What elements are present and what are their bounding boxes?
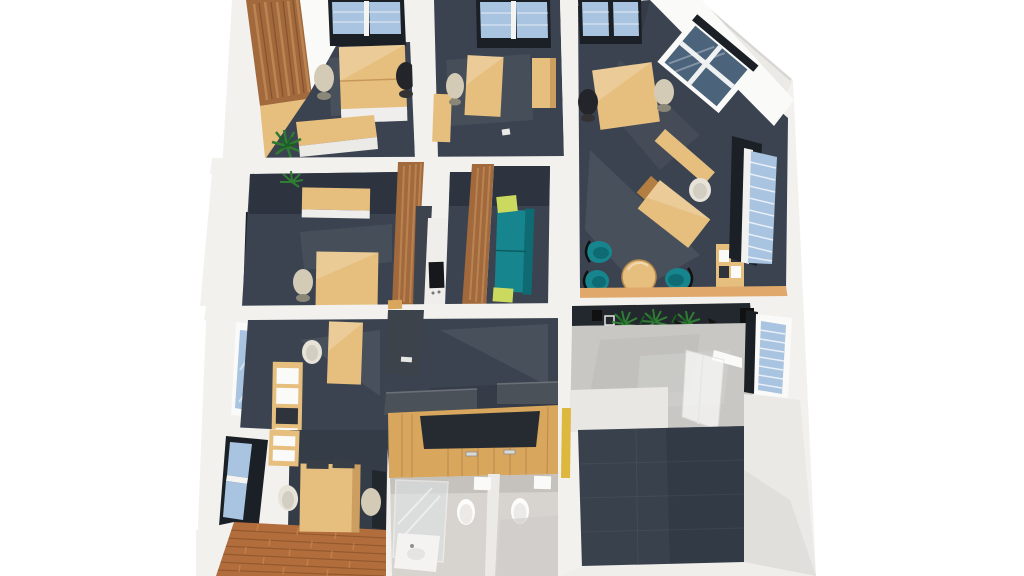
office-chair-beige (361, 488, 381, 516)
cooktop (429, 262, 445, 289)
desk-top (299, 463, 360, 532)
office-chair-black (578, 89, 598, 115)
bathroom (390, 474, 558, 576)
chair-base (449, 99, 461, 106)
office-top-left (246, 0, 416, 158)
office-chair-beige (446, 73, 464, 99)
lounge-nook (462, 164, 550, 306)
chair-base (657, 104, 671, 112)
sink-basin (407, 548, 425, 560)
teal-sofa (494, 207, 534, 294)
counter-top-right (497, 381, 560, 404)
area-carpet-dark-half (666, 426, 748, 567)
threshold-wood-bit (388, 300, 402, 309)
toilet-left-seat (460, 504, 473, 524)
open-room-bottom-right (560, 303, 816, 576)
chair-cushion (282, 491, 294, 509)
skylight-a-mullion (364, 1, 369, 36)
painted-floor-band (570, 387, 668, 432)
chair-seat (593, 247, 609, 259)
wall-cabinet (268, 429, 299, 466)
wall-cabinets (302, 187, 371, 218)
chair-base (399, 90, 413, 98)
skylight-b-glass-2 (516, 2, 548, 38)
office-top-middle (432, 0, 564, 158)
sink-faucet (410, 544, 414, 548)
room-d-desk (592, 62, 660, 130)
skylight-b-mullion (511, 1, 516, 39)
low-cabinet (432, 94, 452, 143)
shelf-cubby-2 (276, 388, 298, 404)
skylight-b-glass-1 (480, 2, 512, 38)
reception (384, 381, 560, 478)
floor-plan-render (0, 0, 1024, 576)
cistern-left (474, 477, 491, 491)
chair-base (296, 294, 310, 302)
tall-cabinet-shade (550, 58, 556, 108)
chair-cushion (693, 183, 707, 199)
window-glass-lower (223, 481, 247, 520)
shelf-cubby-1 (276, 368, 298, 384)
room-h-desk (327, 321, 363, 384)
skylight-d-glass-1 (582, 2, 609, 36)
chair-base (581, 114, 595, 122)
shelf-cubby-1 (719, 250, 729, 262)
kitchen-back-wall (449, 172, 472, 206)
office-chair-beige (314, 64, 334, 92)
sofa-cushion-seam (496, 250, 526, 251)
chair-base (317, 92, 331, 100)
office-mid-left (200, 171, 398, 307)
shelf-cubby-3 (276, 408, 298, 424)
cabinet-underside (302, 209, 370, 218)
office-chair-beige (293, 269, 313, 295)
lime-pillow-bottom (493, 287, 514, 302)
office-chair-beige (654, 79, 674, 105)
room-b-desk (464, 55, 503, 117)
planter-end-cap-left (592, 310, 602, 321)
shelf-cubby-4 (731, 266, 741, 278)
desk-monitor-1 (307, 460, 329, 469)
cabinet-body (302, 187, 370, 210)
chair-seat (668, 274, 684, 286)
chair-cushion (306, 345, 318, 361)
wall-lounge-roomd (550, 164, 568, 306)
cooktop-knob-2 (438, 291, 441, 294)
skylight-a-glass-1 (332, 2, 365, 34)
cabinet-cubby-1 (273, 436, 295, 447)
bathroom-floor-shade (496, 515, 558, 576)
desk-monitor-2 (333, 459, 355, 468)
window-glass-upper (227, 442, 252, 478)
room-e-desk (316, 251, 379, 306)
desk-edge-shade (351, 464, 360, 532)
skylight-a-glass-2 (369, 2, 401, 34)
teal-lounge-chair-1 (586, 241, 612, 263)
chair-seat (592, 276, 606, 288)
counter-handle-2 (504, 450, 515, 454)
room-a-double-desk (339, 45, 408, 123)
skylight-d-glass-2 (613, 2, 639, 36)
cabinet-cubby-2 (273, 450, 295, 462)
counter-handle-1 (466, 452, 477, 456)
shelf-cubby-3 (719, 266, 729, 278)
yellow-wall-sliver (561, 408, 571, 478)
door-handle (401, 357, 412, 363)
room-i-desk (299, 458, 360, 532)
lime-pillow-top (496, 195, 518, 213)
cistern-right (534, 476, 551, 490)
floor-door-mark (502, 128, 511, 135)
dark-door-panel (385, 310, 424, 376)
u-counter-inside (420, 411, 540, 449)
cooktop-knob-1 (432, 292, 435, 295)
